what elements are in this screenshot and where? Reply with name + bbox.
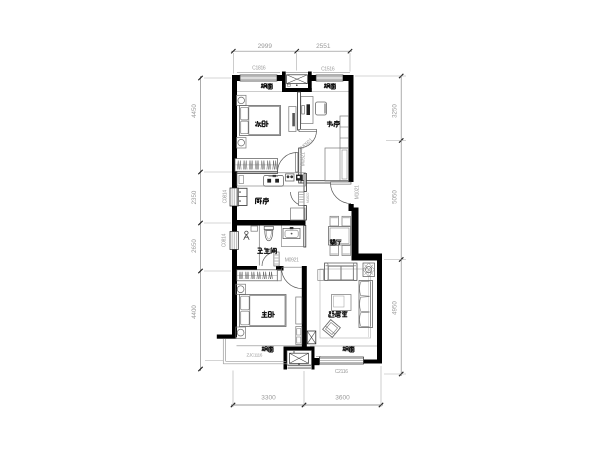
svg-text:2999: 2999: [258, 43, 273, 50]
svg-text:2551: 2551: [316, 43, 331, 50]
svg-text:4450: 4450: [191, 104, 198, 118]
svg-text:C1816: C1816: [252, 66, 266, 72]
svg-text:M0921: M0921: [285, 258, 299, 264]
svg-text:M0921: M0921: [301, 152, 307, 166]
svg-text:3250: 3250: [391, 104, 398, 118]
svg-text:2650: 2650: [191, 239, 198, 253]
svg-text:4400: 4400: [191, 305, 198, 319]
svg-text:C2116: C2116: [335, 369, 348, 375]
svg-text:ZJC1116: ZJC1116: [247, 352, 263, 357]
svg-text:5050: 5050: [391, 190, 398, 204]
svg-text:4950: 4950: [391, 301, 398, 315]
svg-text:C0814: C0814: [222, 233, 228, 247]
svg-text:M1021: M1021: [354, 185, 360, 199]
svg-text:M0822: M0822: [305, 192, 310, 204]
svg-text:C0814: C0814: [222, 190, 228, 204]
svg-text:3300: 3300: [261, 395, 276, 402]
svg-text:3600: 3600: [335, 395, 350, 402]
svg-text:2350: 2350: [191, 190, 198, 204]
svg-text:C1516: C1516: [321, 67, 335, 73]
